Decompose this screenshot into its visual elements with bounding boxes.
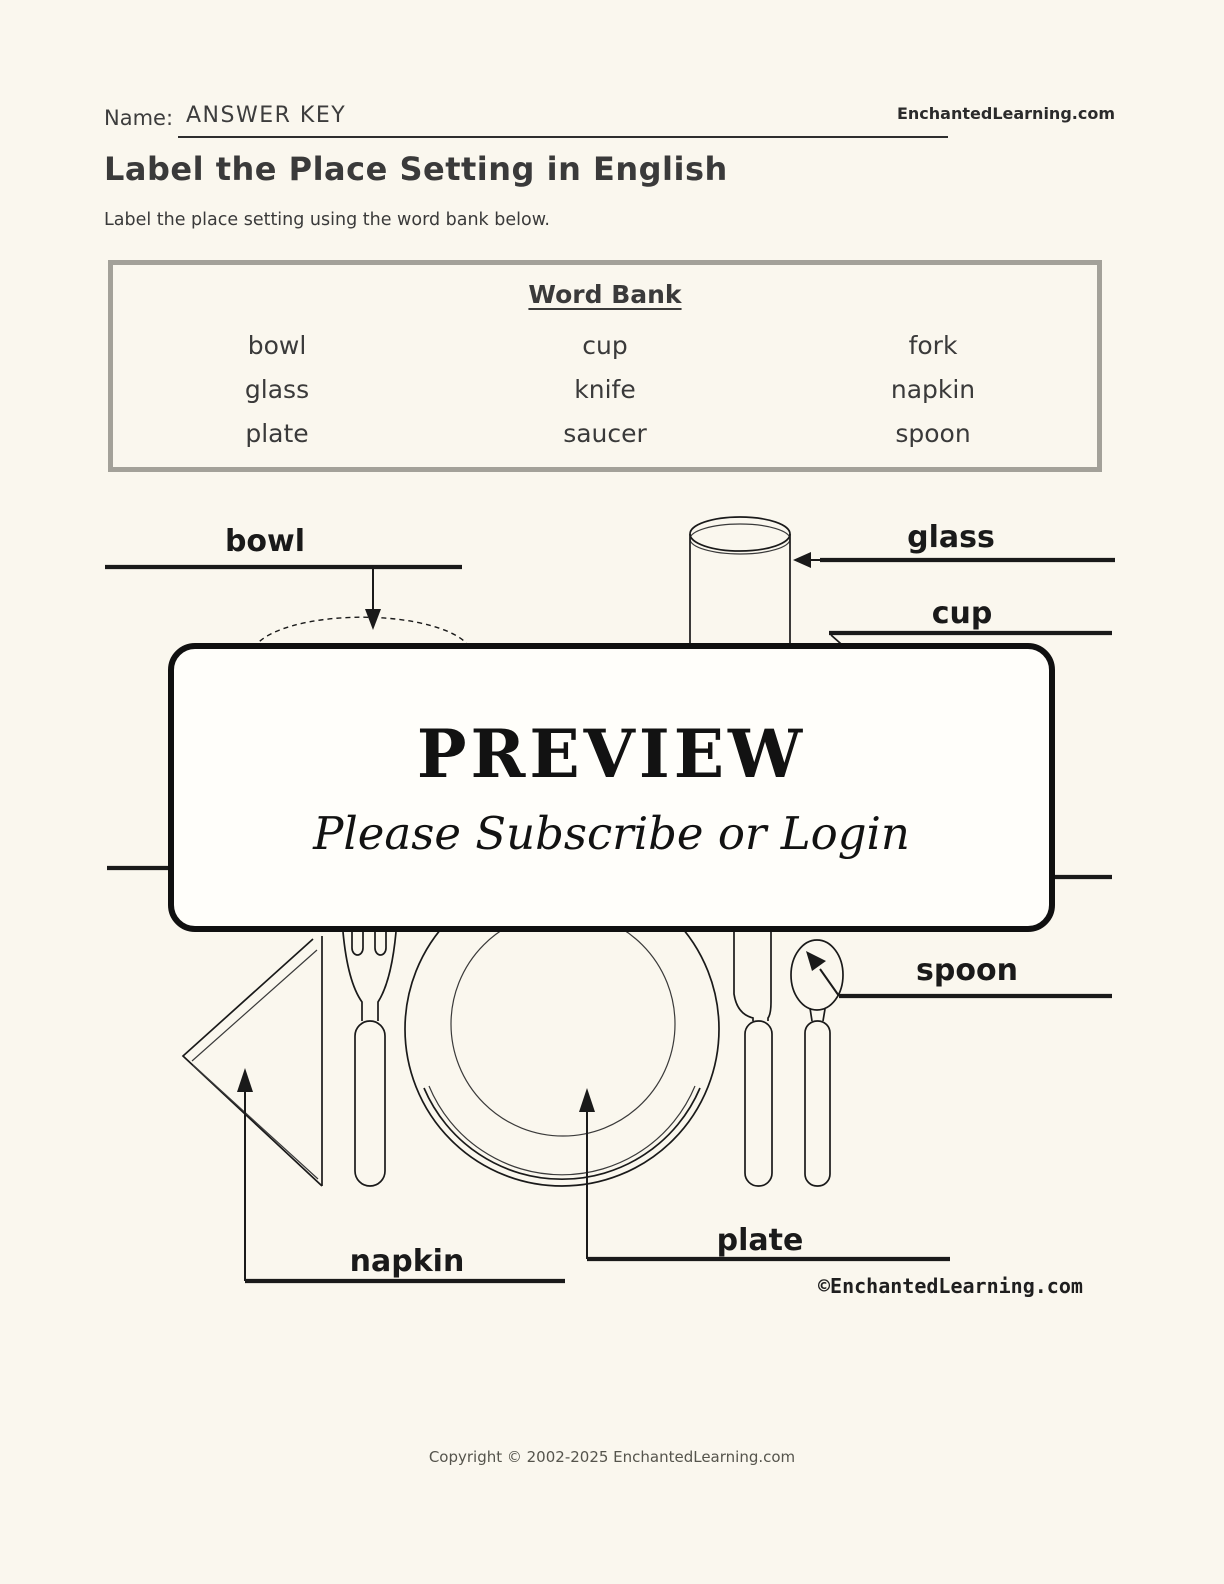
word-bank-item-cup: cup <box>441 323 769 367</box>
diagram-label-glass: glass <box>861 523 1041 553</box>
copyright-text: Copyright © 2002-2025 EnchantedLearning.… <box>0 1448 1224 1466</box>
bowl-callout <box>105 567 462 630</box>
word-bank-item-knife: knife <box>441 367 769 411</box>
instructions-text: Label the place setting using the word b… <box>104 210 550 230</box>
diagram-label-spoon: spoon <box>877 956 1057 986</box>
spoon-drawing <box>791 940 843 1186</box>
name-label: Name: <box>104 106 173 130</box>
knife-drawing <box>734 932 772 1186</box>
site-brand: EnchantedLearning.com <box>897 104 1115 123</box>
page-title: Label the Place Setting in English <box>104 150 728 188</box>
diagram-label-bowl: bowl <box>185 527 345 557</box>
preview-subscribe-login-text: Please Subscribe or Login <box>313 811 910 856</box>
fork-drawing <box>343 932 396 1186</box>
preview-title: PREVIEW <box>417 721 806 787</box>
word-bank-item-saucer: saucer <box>441 411 769 455</box>
name-value: ANSWER KEY <box>186 103 346 128</box>
diagram-label-napkin: napkin <box>317 1247 497 1277</box>
glass-drawing <box>690 517 790 646</box>
napkin-drawing <box>183 936 322 1186</box>
diagram-label-cup: cup <box>882 599 1042 629</box>
word-bank-title: Word Bank <box>113 280 1097 309</box>
word-bank-item-plate: plate <box>113 411 441 455</box>
word-bank-item-glass: glass <box>113 367 441 411</box>
word-bank-item-napkin: napkin <box>769 367 1097 411</box>
preview-overlay: PREVIEW Please Subscribe or Login <box>168 643 1055 932</box>
diagram-label-plate: plate <box>670 1226 850 1256</box>
word-bank-grid: bowl cup fork glass knife napkin plate s… <box>113 323 1097 455</box>
word-bank-box: Word Bank bowl cup fork glass knife napk… <box>108 260 1102 472</box>
name-underline <box>178 136 948 138</box>
word-bank-item-bowl: bowl <box>113 323 441 367</box>
worksheet-page: Name: ANSWER KEY EnchantedLearning.com L… <box>0 0 1224 1584</box>
diagram-watermark: ©EnchantedLearning.com <box>818 1274 1083 1298</box>
word-bank-item-spoon: spoon <box>769 411 1097 455</box>
word-bank-item-fork: fork <box>769 323 1097 367</box>
